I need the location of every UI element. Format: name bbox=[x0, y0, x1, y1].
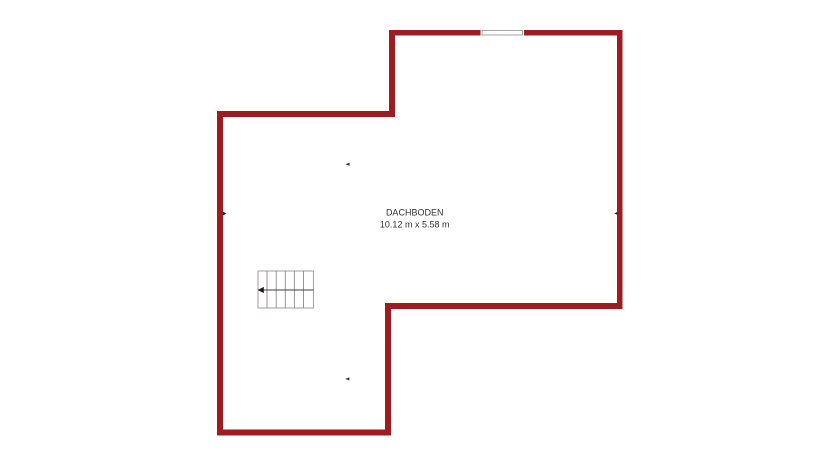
svg-text:10.12 m x 5.58 m: 10.12 m x 5.58 m bbox=[380, 220, 450, 230]
svg-text:DACHBODEN: DACHBODEN bbox=[386, 207, 444, 217]
